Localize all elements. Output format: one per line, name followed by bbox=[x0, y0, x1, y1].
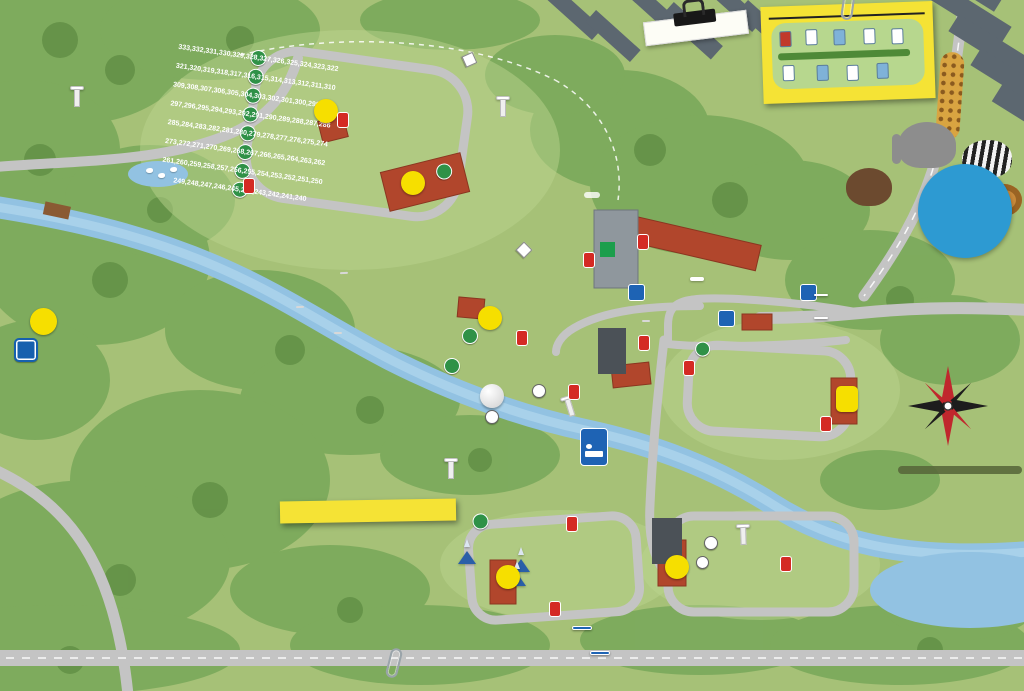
activity-item bbox=[286, 513, 450, 516]
taltomrade-sign bbox=[444, 458, 458, 462]
almenas-sign bbox=[572, 626, 592, 630]
parking-icon bbox=[718, 310, 735, 327]
info-marker-icon bbox=[637, 234, 649, 250]
campsite-number: 297,296,295,294,293,292,291,290,289,288,… bbox=[241, 105, 259, 123]
campsite-number: 321,320,319,318,317,316,315,314,313,312,… bbox=[247, 68, 265, 86]
caravan-icon bbox=[891, 28, 904, 44]
himlavalvet-domes bbox=[480, 384, 504, 424]
campsite-number bbox=[444, 358, 461, 375]
tent-icon bbox=[458, 534, 476, 564]
swan-icon bbox=[170, 167, 177, 172]
info-marker-icon bbox=[337, 112, 349, 128]
campground-map: 333,332,331,330,329,328,327,326,325,324,… bbox=[0, 0, 1024, 691]
info-marker-icon bbox=[583, 252, 595, 268]
gps-coordinates bbox=[898, 466, 1022, 474]
zebrastugor-numbers bbox=[532, 384, 546, 398]
service-house-s5-badge bbox=[665, 555, 689, 579]
incheckning-label bbox=[690, 277, 704, 281]
info-marker-icon bbox=[516, 330, 528, 346]
swan-icon bbox=[146, 168, 153, 173]
service-house-s3-badge bbox=[401, 171, 425, 195]
infart-sign bbox=[814, 294, 828, 296]
husvagn-diagram bbox=[771, 18, 925, 89]
camping-area-397-432 bbox=[472, 513, 489, 530]
service-icon bbox=[14, 338, 38, 362]
caravan-icon bbox=[782, 65, 795, 81]
camping-area-59-101 bbox=[686, 340, 710, 357]
start-frisbeegolf-sign bbox=[642, 320, 650, 322]
caravan-icon bbox=[863, 28, 876, 44]
giraffgatan-row-510 bbox=[444, 358, 461, 375]
swan-icon bbox=[158, 173, 165, 178]
campsite-number: 333,332,331,330,329,328,327,326,325,324,… bbox=[249, 49, 267, 67]
elefantstugor-houses bbox=[704, 536, 718, 550]
service-house-s6-badge bbox=[496, 565, 520, 589]
bear-image bbox=[846, 168, 892, 206]
info-marker-icon bbox=[568, 384, 580, 400]
campsite-number: 309,308,307,306,305,304,303,302,301,300,… bbox=[244, 87, 262, 105]
adventure-area-title bbox=[286, 509, 450, 512]
campsite-number: 273,272,271,270,269,268,267,266,265,264,… bbox=[236, 143, 254, 161]
bjornstugor-sign bbox=[496, 96, 510, 100]
info-marker-icon bbox=[566, 516, 578, 532]
service-block bbox=[14, 308, 57, 362]
info-marker-icon bbox=[243, 178, 255, 194]
campsite-number bbox=[694, 341, 710, 357]
trollstigen-sign bbox=[70, 86, 84, 90]
campsite-number bbox=[472, 513, 489, 530]
info-marker-icon bbox=[638, 335, 650, 351]
hedge-icon bbox=[778, 49, 910, 61]
giraffgatan-row-500 bbox=[462, 328, 479, 345]
campsite-number: 285,284,283,282,281,280,279,278,277,276,… bbox=[239, 124, 257, 142]
dome-tent-icon bbox=[480, 384, 504, 408]
info-marker-icon bbox=[683, 360, 695, 376]
service-house-s2-badge bbox=[478, 306, 502, 330]
service-area-badge bbox=[30, 308, 57, 335]
caravan-icon bbox=[846, 65, 859, 81]
caravan-icon bbox=[779, 31, 792, 47]
elephant-image bbox=[898, 122, 956, 168]
campsite-number bbox=[435, 162, 454, 181]
campsite-number bbox=[696, 556, 710, 570]
elefantstugor-sites bbox=[696, 556, 710, 570]
rya-sign bbox=[590, 651, 610, 655]
accommodation-bed-icon bbox=[580, 428, 608, 466]
info-marker-icon bbox=[780, 556, 792, 572]
caravan-icon bbox=[816, 65, 829, 81]
adventure-activity-list bbox=[286, 513, 450, 516]
aventyrsgolf-sign bbox=[340, 272, 348, 274]
elefantstugor-sign bbox=[736, 524, 750, 528]
adventure-area-note bbox=[280, 498, 456, 523]
parking-icon bbox=[628, 284, 645, 301]
caravan-icon bbox=[876, 63, 889, 79]
service-house-s4-badge bbox=[314, 99, 338, 123]
camping-area-168-239 bbox=[435, 162, 454, 181]
service-legend bbox=[8, 298, 274, 564]
compass-rose-icon bbox=[908, 366, 988, 446]
parking-icon bbox=[800, 284, 817, 301]
cabin-number bbox=[704, 536, 718, 550]
service-house-s1-badge bbox=[836, 386, 858, 412]
utfart-sign bbox=[814, 317, 828, 319]
campsite-number bbox=[462, 328, 479, 345]
caravan-icon bbox=[833, 29, 846, 45]
husvagn-note bbox=[772, 92, 928, 97]
info-marker-icon bbox=[549, 601, 561, 617]
cabin-number bbox=[516, 242, 533, 259]
aventyrskiosken-sign bbox=[296, 306, 304, 308]
caravan-icon bbox=[805, 29, 818, 45]
safaribanan-sign bbox=[334, 332, 342, 334]
safarihuset-label bbox=[584, 192, 600, 198]
info-marker-icon bbox=[820, 416, 832, 432]
lejonstugor-numbers bbox=[518, 244, 530, 256]
dome-number bbox=[485, 410, 499, 424]
cabin-number bbox=[532, 384, 546, 398]
